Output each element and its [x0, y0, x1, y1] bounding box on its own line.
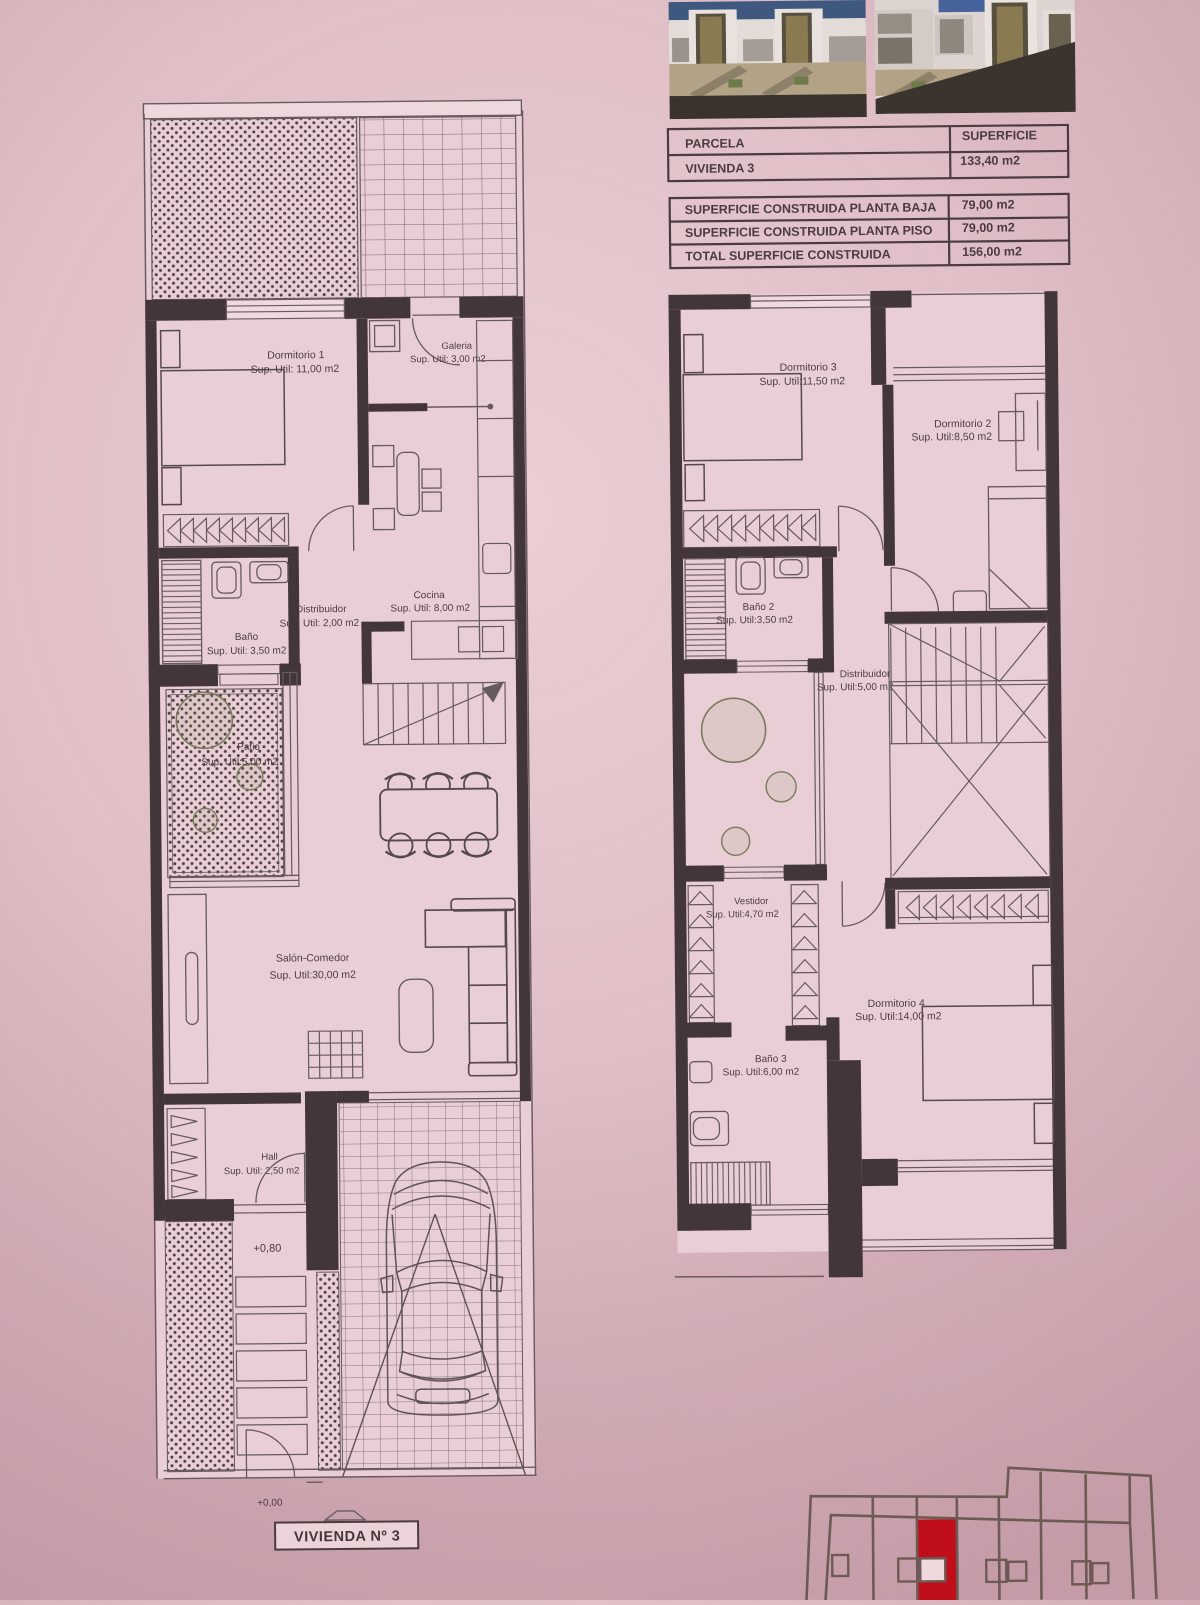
svg-text:79,00 m2: 79,00 m2 [962, 197, 1015, 212]
svg-text:Cocina: Cocina [414, 590, 446, 601]
svg-text:TOTAL SUPERFICIE CONSTRUIDA: TOTAL SUPERFICIE CONSTRUIDA [685, 247, 891, 263]
svg-text:SUPERFICIE CONSTRUIDA PLANTA B: SUPERFICIE CONSTRUIDA PLANTA BAJA [685, 200, 937, 217]
svg-text:Salón-Comedor: Salón-Comedor [276, 952, 350, 965]
svg-text:Dormitorio 3: Dormitorio 3 [779, 361, 836, 374]
svg-text:133,40 m2: 133,40 m2 [960, 153, 1020, 168]
svg-text:Sup. Util:5,00 m2: Sup. Util:5,00 m2 [201, 757, 278, 769]
svg-text:Sup. Util:5,00 m2: Sup. Util:5,00 m2 [817, 682, 894, 694]
svg-text:Baño 2: Baño 2 [743, 602, 775, 613]
svg-text:Galeria: Galeria [441, 341, 472, 352]
svg-text:156,00 m2: 156,00 m2 [962, 244, 1022, 259]
svg-text:Dormitorio 2: Dormitorio 2 [934, 418, 991, 431]
svg-text:Distribuidor: Distribuidor [296, 604, 347, 615]
svg-text:Sup. Util:30,00 m2: Sup. Util:30,00 m2 [270, 969, 357, 982]
svg-text:Sup. Util:3,50 m2: Sup. Util:3,50 m2 [716, 615, 793, 627]
svg-text:Hall: Hall [261, 1152, 277, 1163]
svg-text:VIVIENDA 3: VIVIENDA 3 [685, 161, 754, 176]
svg-text:+0,80: +0,80 [253, 1243, 281, 1255]
svg-text:Sup. Util: 2,50 m2: Sup. Util: 2,50 m2 [224, 1165, 300, 1177]
svg-text:VIVIENDA Nº 3: VIVIENDA Nº 3 [294, 1528, 400, 1545]
svg-text:Sup. Util: 8,00 m2: Sup. Util: 8,00 m2 [390, 603, 470, 615]
svg-text:+0,00: +0,00 [257, 1498, 283, 1509]
svg-text:Sup. Util:11,50 m2: Sup. Util:11,50 m2 [759, 375, 845, 388]
svg-text:Baño: Baño [235, 632, 259, 643]
svg-text:Dormitorio 1: Dormitorio 1 [267, 349, 324, 362]
svg-text:SUPERFICIE CONSTRUIDA PLANTA P: SUPERFICIE CONSTRUIDA PLANTA PISO [685, 223, 933, 240]
svg-text:Sup. Util:4,70 m2: Sup. Util:4,70 m2 [706, 909, 779, 921]
svg-text:Vestidor: Vestidor [734, 896, 768, 907]
svg-text:SUPERFICIE: SUPERFICIE [962, 128, 1037, 143]
svg-text:Patio: Patio [237, 742, 260, 753]
svg-text:Sup. Util:14,00 m2: Sup. Util:14,00 m2 [855, 1010, 942, 1023]
svg-text:Sup. Util: 11,00 m2: Sup. Util: 11,00 m2 [251, 363, 340, 376]
svg-text:Sup. Util: 3,00 m2: Sup. Util: 3,00 m2 [410, 354, 486, 366]
svg-text:79,00 m2: 79,00 m2 [962, 220, 1015, 235]
svg-text:Sup. Util:8,50 m2: Sup. Util:8,50 m2 [911, 431, 992, 444]
svg-text:Sup. Util: 3,50 m2: Sup. Util: 3,50 m2 [207, 646, 287, 658]
svg-text:Baño 3: Baño 3 [755, 1054, 787, 1065]
svg-text:Sup. Util:6,00 m2: Sup. Util:6,00 m2 [722, 1067, 799, 1079]
svg-text:Distribuidor: Distribuidor [840, 669, 891, 680]
svg-text:PARCELA: PARCELA [685, 136, 745, 151]
svg-text:Dormitorio 4: Dormitorio 4 [868, 997, 925, 1010]
